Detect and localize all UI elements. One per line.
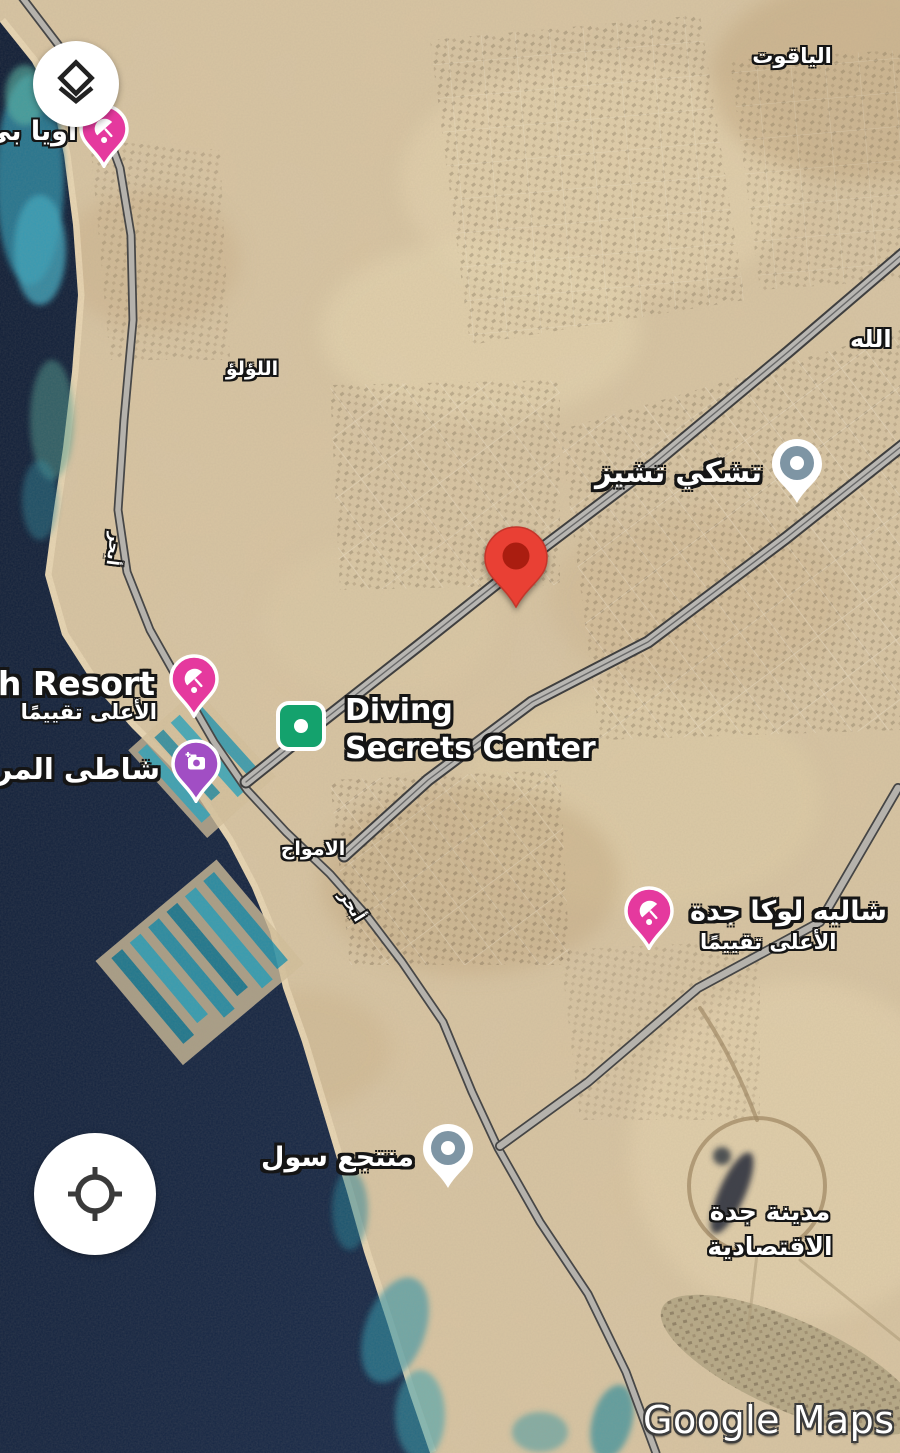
poi-label-beach-resort[interactable]: ach Resort: [0, 664, 155, 703]
my-location-icon: [55, 1154, 135, 1234]
poi-label-diving-secrets[interactable]: Diving Secrets Center: [345, 692, 596, 768]
destination-pin[interactable]: [484, 526, 548, 612]
layers-icon: [45, 53, 107, 115]
square-poi-dot: [294, 719, 308, 733]
layers-button[interactable]: [33, 41, 119, 127]
jec-label-line2: الاقتصادية: [707, 1229, 832, 1264]
poi-label-chalet-luca[interactable]: شاليه لوكا جدة: [690, 896, 887, 927]
area-label-yaqut: الياقوت: [752, 44, 832, 68]
poi-marker-coral-beach[interactable]: [171, 739, 221, 807]
area-label-allah-partial: الله: [850, 325, 892, 353]
poi-sublabel-chalet-luca: الأعلى تقييمًا: [700, 930, 836, 954]
diving-label-line2: Secrets Center: [345, 730, 596, 768]
poi-marker-diving-secrets[interactable]: [275, 700, 327, 756]
pin-inner-dot: [503, 543, 530, 570]
poi-marker-sol-resort[interactable]: [422, 1123, 474, 1193]
poi-marker-chuck-e-cheese[interactable]: [771, 438, 823, 508]
diving-label-line1: Diving: [345, 692, 596, 730]
poi-sublabel-beach-resort: الأعلى تقييمًا: [21, 700, 157, 724]
area-label-amwaj: الامواج: [281, 838, 346, 860]
poi-marker-beach-resort[interactable]: [169, 654, 219, 722]
jec-label-line1: مدينة جدة: [707, 1194, 832, 1229]
poi-label-sol-resort[interactable]: منتجع سول: [261, 1142, 414, 1173]
road-label-obhur-1: أبحر: [103, 531, 126, 566]
my-location-button[interactable]: [34, 1133, 156, 1255]
poi-label-coral-beach[interactable]: شاطى المرجا: [0, 752, 160, 786]
area-label-jeddah-economic-city: مدينة جدة الاقتصادية: [707, 1194, 832, 1264]
google-maps-watermark: Google Maps: [643, 1398, 895, 1442]
poi-marker-chalet-luca[interactable]: [624, 886, 674, 954]
google-maps-screen: الياقوت اللؤلؤ الله الامواج أبحر أبحر مد…: [0, 0, 900, 1453]
poi-label-chuck-e-cheese[interactable]: تشكي تشيز: [595, 455, 762, 489]
area-label-lulu: اللؤلؤ: [226, 358, 278, 380]
